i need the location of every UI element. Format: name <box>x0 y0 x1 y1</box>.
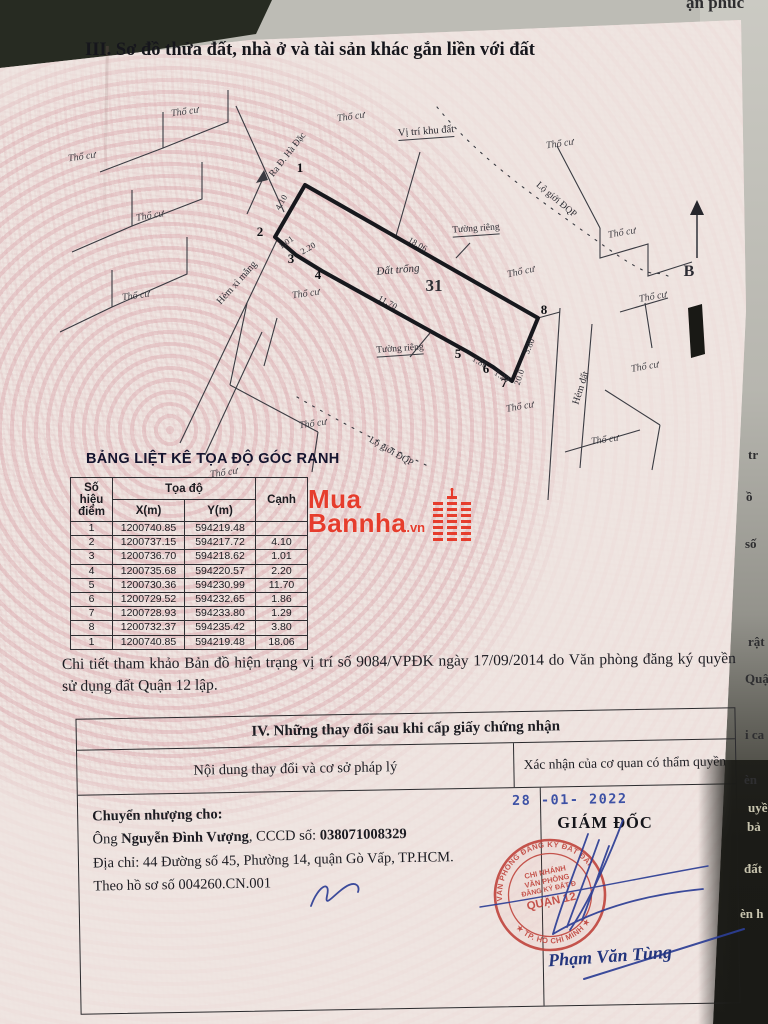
cell-point: 8 <box>71 621 113 635</box>
cell-point: 1 <box>71 635 113 649</box>
transfer-name: Nguyễn Đình Vượng <box>121 829 249 847</box>
watermark-line2: Bannha.vn <box>308 512 425 536</box>
underlying-page-text: èn h <box>740 906 763 922</box>
cell-edge: 1.01 <box>256 550 308 564</box>
cell-point: 5 <box>71 578 113 592</box>
cell-x: 1200740.85 <box>113 635 185 649</box>
underlying-page-text: bả <box>747 819 761 835</box>
cell-edge: 3.80 <box>256 621 308 635</box>
underlying-page-text: èn <box>744 772 757 788</box>
date-stamp: 28 -01- 2022 <box>512 791 628 809</box>
cell-point: 4 <box>71 564 113 578</box>
point-label: 4 <box>315 267 322 283</box>
transfer-cccd-label: , CCCD số: <box>249 828 320 845</box>
col-point-header-line2: điểm <box>78 506 105 518</box>
transfer-prefix: Ông <box>92 831 121 847</box>
cell-edge <box>256 522 308 536</box>
plot-number: 31 <box>426 276 443 296</box>
cell-point: 1 <box>71 522 113 536</box>
cell-x: 1200740.85 <box>113 522 185 536</box>
table-row: 41200735.68594220.572.20 <box>71 564 308 578</box>
cell-y: 594217.72 <box>185 536 256 550</box>
cell-point: 7 <box>71 607 113 621</box>
coords-table: Số hiệu điểm Tọa độ Cạnh X(m) Y(m) 11200… <box>70 477 308 650</box>
cell-point: 2 <box>71 536 113 550</box>
col-edge-header: Cạnh <box>256 478 308 522</box>
table-row: 61200729.52594232.651.86 <box>71 592 308 606</box>
transfer-content: Chuyển nhượng cho: Ông Nguyễn Đình Vượng… <box>78 788 545 1014</box>
watermark-tld: .vn <box>406 520 425 535</box>
north-label: B <box>684 263 695 281</box>
coords-table-title: BẢNG LIỆT KÊ TỌA ĐỘ GÓC RANH <box>86 451 340 467</box>
watermark: Mua Bannha.vn <box>308 488 477 546</box>
cell-y: 594230.99 <box>185 578 256 592</box>
table-row: 71200728.93594233.801.29 <box>71 607 308 621</box>
section3-title: III. Sơ đồ thửa đất, nhà ở và tài sản kh… <box>70 40 550 61</box>
underlying-page-text: đất <box>744 861 762 877</box>
table-row: 51200730.36594230.9911.70 <box>71 578 308 592</box>
point-label: 5 <box>455 346 462 362</box>
underlying-page-text: uyề <box>748 800 768 816</box>
cell-edge: 4.10 <box>256 536 308 550</box>
cell-edge: 1.86 <box>256 592 308 606</box>
col-point-header-line1: Số hiệu <box>80 482 104 506</box>
underlying-page-text: ận phúc <box>686 0 744 13</box>
reference-note: Chi tiết tham khảo Bản đồ hiện trạng vị … <box>62 648 736 698</box>
cell-y: 594218.62 <box>185 550 256 564</box>
cell-x: 1200737.15 <box>113 536 185 550</box>
transfer-cccd-number: 038071008329 <box>320 827 407 845</box>
underlying-page-text: Quậ <box>745 671 768 687</box>
cell-x: 1200729.52 <box>113 592 185 606</box>
table-row: 31200736.70594218.621.01 <box>71 550 308 564</box>
point-label: 3 <box>288 251 295 267</box>
table-row: 21200737.15594217.724.10 <box>71 536 308 550</box>
cell-x: 1200728.93 <box>113 607 185 621</box>
cell-edge: 2.20 <box>256 564 308 578</box>
cell-x: 1200736.70 <box>113 550 185 564</box>
section4-table: IV. Những thay đổi sau khi cấp giấy chứn… <box>75 707 740 1014</box>
point-label: 8 <box>541 302 548 318</box>
col-coords-header: Tọa độ <box>113 478 256 500</box>
director-title: GIÁM ĐỐC <box>538 813 672 833</box>
cell-x: 1200730.36 <box>113 578 185 592</box>
official-stamp: VĂN PHÒNG ĐĂNG KÝ ĐẤT ĐAI ★ TP. HỒ CHÍ M… <box>481 826 619 964</box>
watermark-line2-text: Bannha <box>308 508 406 538</box>
cell-point: 3 <box>71 550 113 564</box>
table-row: 11200740.85594219.48 <box>71 522 308 536</box>
col-y-header: Y(m) <box>185 500 256 522</box>
cell-x: 1200732.37 <box>113 621 185 635</box>
cell-y: 594219.48 <box>185 522 256 536</box>
col-x-header: X(m) <box>113 500 185 522</box>
cell-y: 594220.57 <box>185 564 256 578</box>
photo-scene: ận phúc III. Sơ đồ thửa đất, nhà ở và tà… <box>0 0 768 1024</box>
cell-edge: 11.70 <box>256 578 308 592</box>
cell-edge: 1.29 <box>256 607 308 621</box>
underlying-page-text: ồ <box>746 489 753 505</box>
cell-y: 594233.80 <box>185 607 256 621</box>
underlying-page-text: i ca <box>745 727 764 743</box>
point-label: 2 <box>257 224 264 240</box>
watermark-building-icon <box>431 488 477 546</box>
underlying-page-text: rật <box>748 634 765 650</box>
col-point-header: Số hiệu điểm <box>71 478 113 522</box>
cell-y: 594235.42 <box>185 621 256 635</box>
table-row: 81200732.37594235.423.80 <box>71 621 308 635</box>
watermark-text: Mua Bannha.vn <box>308 488 425 546</box>
underlying-page-text: tr <box>748 447 758 463</box>
cell-edge: 18.06 <box>256 635 308 649</box>
underlying-page-text: số <box>745 536 757 552</box>
cell-point: 6 <box>71 592 113 606</box>
cell-y: 594219.48 <box>185 635 256 649</box>
table-row: 11200740.85594219.4818.06 <box>71 635 308 649</box>
cell-x: 1200735.68 <box>113 564 185 578</box>
cell-y: 594232.65 <box>185 592 256 606</box>
col-change-content-header: Nội dung thay đổi và cơ sở pháp lý <box>77 743 515 795</box>
point-label: 1 <box>297 160 304 176</box>
